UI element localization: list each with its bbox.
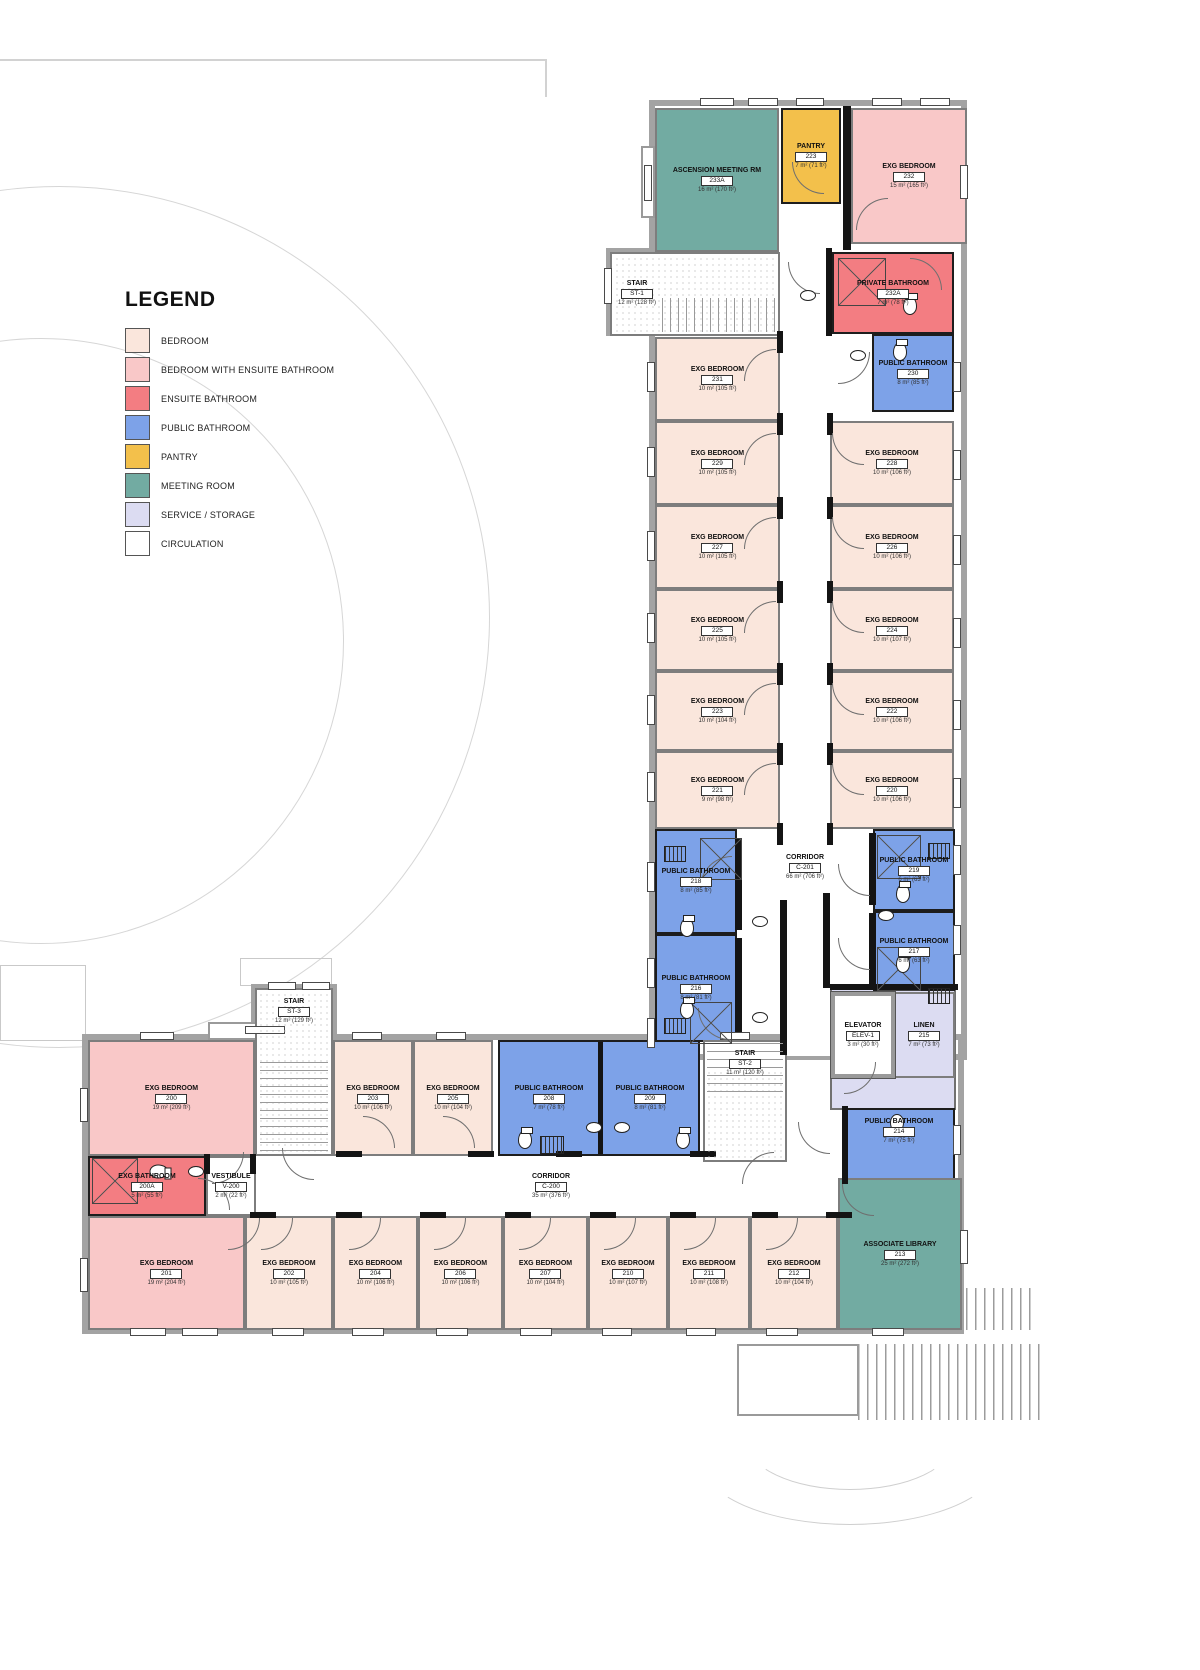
legend-title: LEGEND (125, 288, 385, 312)
site-boundary-line (0, 59, 546, 61)
legend-item-label: SERVICE / STORAGE (161, 510, 255, 520)
wall-bar (250, 1154, 256, 1174)
wall-bar (735, 938, 742, 1038)
window (436, 1328, 468, 1336)
room-name: STAIR (627, 280, 647, 288)
room-number: 232A (877, 289, 909, 299)
room-label: EXG BEDROOM21110 m² (108 ft²) (682, 1260, 735, 1287)
stair3-treads (260, 1062, 328, 1152)
window (647, 531, 655, 561)
room-area: 10 m² (106 ft²) (873, 718, 911, 725)
window (272, 1328, 304, 1336)
room-number: ST-2 (729, 1059, 761, 1069)
room-label: EXG BEDROOM22310 m² (104 ft²) (691, 698, 744, 725)
wall-bar (826, 1212, 852, 1218)
room-area: 7 m² (78 ft²) (877, 300, 908, 307)
window (644, 165, 652, 201)
room-name: PUBLIC BATHROOM (662, 868, 731, 876)
window (182, 1328, 218, 1336)
room-bedroom-201: EXG BEDROOM20119 m² (204 ft²) (88, 1216, 245, 1330)
room-label: EXG BEDROOM22910 m² (105 ft²) (691, 450, 744, 477)
wall-bar (869, 833, 876, 905)
room-area: 11 m² (120 ft²) (726, 1070, 764, 1077)
window (647, 362, 655, 392)
window (520, 1328, 552, 1336)
wall-bar (777, 413, 783, 435)
window (352, 1328, 384, 1336)
room-number: 209 (634, 1094, 666, 1104)
room-label: PUBLIC BATHROOM2308 m² (85 ft²) (879, 360, 948, 387)
wall-bar (204, 1154, 210, 1174)
room-label: EXG BEDROOM20610 m² (106 ft²) (434, 1260, 487, 1287)
room-number: 218 (680, 877, 712, 887)
window (953, 362, 961, 392)
room-name: EXG BEDROOM (145, 1085, 198, 1093)
room-number: 227 (701, 543, 733, 553)
window (953, 778, 961, 808)
room-label: ELEVATORELEV-13 m² (30 ft²) (845, 1022, 882, 1049)
room-name: EXG BEDROOM (691, 366, 744, 374)
room-name: LINEN (914, 1022, 935, 1030)
room-label: STAIRST-312 m² (129 ft²) (275, 998, 313, 1025)
room-area: 10 m² (107 ft²) (873, 637, 911, 644)
room-name: ASSOCIATE LIBRARY (863, 1241, 936, 1249)
window (953, 1125, 961, 1155)
sink-icon (752, 1012, 768, 1023)
room-area: 9 m² (98 ft²) (702, 797, 733, 804)
window (796, 98, 824, 106)
room-area: 10 m² (104 ft²) (526, 1280, 564, 1287)
room-name: EXG BEDROOM (691, 534, 744, 542)
legend: LEGEND BEDROOMBEDROOM WITH ENSUITE BATHR… (125, 288, 385, 558)
site-curve (745, 1390, 955, 1490)
room-number: 204 (359, 1269, 391, 1279)
window (130, 1328, 166, 1336)
room-name: EXG BEDROOM (865, 617, 918, 625)
room-number: ELEV-1 (846, 1031, 880, 1041)
wall-bar (598, 1042, 603, 1154)
window (647, 772, 655, 802)
room-label: PUBLIC BATHROOM2196 m² (63 ft²) (880, 857, 949, 884)
window (686, 1328, 716, 1336)
sink-icon (878, 910, 894, 921)
room-label: STAIRST-211 m² (120 ft²) (726, 1050, 764, 1077)
room-name: EXG BEDROOM (140, 1260, 193, 1268)
legend-item-public-bath: PUBLIC BATHROOM (125, 413, 385, 442)
room-name: EXG BEDROOM (691, 777, 744, 785)
room-name: EXG BEDROOM (262, 1260, 315, 1268)
room-meeting-233a: ASCENSION MEETING RM233A16 m² (170 ft²) (655, 108, 779, 252)
room-number: 223 (701, 707, 733, 717)
room-name: EXG BEDROOM (882, 163, 935, 171)
window (302, 982, 330, 990)
legend-item-circulation: CIRCULATION (125, 529, 385, 558)
room-label: EXG BEDROOM20119 m² (204 ft²) (140, 1260, 193, 1287)
room-number: 228 (876, 459, 908, 469)
room-label: PUBLIC BATHROOM2176 m² (63 ft²) (880, 938, 949, 965)
room-name: CORRIDOR (786, 854, 824, 862)
room-number: 200A (131, 1182, 163, 1192)
room-public-bath-230: PUBLIC BATHROOM2308 m² (85 ft²) (872, 334, 954, 412)
room-label: EXG BEDROOM20410 m² (106 ft²) (349, 1260, 402, 1287)
room-name: EXG BEDROOM (691, 450, 744, 458)
toilet-icon (518, 1130, 532, 1149)
room-name: EXG BEDROOM (519, 1260, 572, 1268)
room-label: EXG BEDROOM23110 m² (105 ft²) (691, 366, 744, 393)
room-name: PRIVATE BATHROOM (857, 280, 929, 288)
room-area: 8 m² (81 ft²) (634, 1105, 665, 1112)
wall-bar (826, 248, 832, 336)
room-label: PANTRY2237 m² (71 ft²) (795, 143, 827, 170)
room-name: ELEVATOR (845, 1022, 882, 1030)
room-area: 10 m² (104 ft²) (775, 1280, 813, 1287)
room-name: PUBLIC BATHROOM (515, 1085, 584, 1093)
room-area: 10 m² (105 ft²) (698, 554, 736, 561)
room-area: 7 m² (73 ft²) (908, 1042, 939, 1049)
room-area: 7 m² (75 ft²) (883, 1138, 914, 1145)
sink-icon (188, 1166, 204, 1177)
room-linen-215: LINEN2157 m² (73 ft²) (893, 992, 955, 1078)
room-number: 200 (155, 1094, 187, 1104)
room-area: 15 m² (165 ft²) (890, 183, 928, 190)
room-area: 8 m² (85 ft²) (680, 888, 711, 895)
room-name: PUBLIC BATHROOM (880, 857, 949, 865)
legend-item-label: BEDROOM WITH ENSUITE BATHROOM (161, 365, 334, 375)
room-name: EXG BEDROOM (767, 1260, 820, 1268)
room-area: 19 m² (204 ft²) (147, 1280, 185, 1287)
room-area: 35 m² (376 ft²) (532, 1193, 570, 1200)
room-label: EXG BEDROOM22810 m² (106 ft²) (865, 450, 918, 477)
wall-bar (823, 893, 830, 988)
room-name: PANTRY (797, 143, 825, 151)
room-label: EXG BEDROOM2219 m² (98 ft²) (691, 777, 744, 804)
room-label: EXG BEDROOM22210 m² (106 ft²) (865, 698, 918, 725)
room-name: EXG BEDROOM (434, 1260, 487, 1268)
room-number: 222 (876, 707, 908, 717)
room-number: 214 (883, 1127, 915, 1137)
room-label: EXG BEDROOM22610 m² (106 ft²) (865, 534, 918, 561)
room-label: PUBLIC BATHROOM2168 m² (81 ft²) (662, 975, 731, 1002)
wall-bar (843, 106, 851, 250)
window (352, 1032, 382, 1040)
legend-item-bedroom-ensuite: BEDROOM WITH ENSUITE BATHROOM (125, 355, 385, 384)
room-name: EXG BEDROOM (865, 777, 918, 785)
room-label: ASCENSION MEETING RM233A16 m² (170 ft²) (673, 167, 761, 194)
room-area: 10 m² (106 ft²) (873, 470, 911, 477)
window (960, 1230, 968, 1264)
room-name: PUBLIC BATHROOM (616, 1085, 685, 1093)
room-label: VESTIBULEV-2002 m² (22 ft²) (211, 1173, 250, 1200)
room-number: 233A (701, 176, 733, 186)
wall-bar (777, 497, 783, 519)
room-label: PUBLIC BATHROOM2188 m² (85 ft²) (662, 868, 731, 895)
window (602, 1328, 632, 1336)
window (268, 982, 296, 990)
toilet-icon (676, 1130, 690, 1149)
room-number: 201 (150, 1269, 182, 1279)
room-area: 10 m² (104 ft²) (698, 718, 736, 725)
room-area: 10 m² (106 ft²) (356, 1280, 394, 1287)
vent-grille-icon (664, 846, 686, 862)
wall-bar (842, 1106, 848, 1184)
window (80, 1258, 88, 1292)
room-area: 10 m² (105 ft²) (698, 637, 736, 644)
room-number: 211 (693, 1269, 725, 1279)
room-name: PUBLIC BATHROOM (880, 938, 949, 946)
room-number: C-201 (789, 863, 821, 873)
room-number: 224 (876, 626, 908, 636)
legend-items: BEDROOMBEDROOM WITH ENSUITE BATHROOMENSU… (125, 326, 385, 558)
window (604, 268, 612, 304)
room-name: STAIR (735, 1050, 755, 1058)
room-area: 10 m² (105 ft²) (698, 386, 736, 393)
toilet-icon (893, 342, 907, 361)
room-name: EXG BEDROOM (691, 698, 744, 706)
sink-icon (614, 1122, 630, 1133)
room-number: ST-1 (621, 289, 653, 299)
wall-bar (777, 331, 783, 353)
wall-bar (827, 823, 833, 845)
window (920, 98, 950, 106)
wall-bar (827, 743, 833, 765)
room-label: PUBLIC BATHROOM2098 m² (81 ft²) (616, 1085, 685, 1112)
room-label: EXG BEDROOM20710 m² (104 ft²) (519, 1260, 572, 1287)
toilet-icon (896, 884, 910, 903)
room-number: 205 (437, 1094, 469, 1104)
room-area: 7 m² (71 ft²) (795, 163, 826, 170)
room-area: 10 m² (104 ft²) (434, 1105, 472, 1112)
room-number: 206 (444, 1269, 476, 1279)
sink-icon (586, 1122, 602, 1133)
room-label: EXG BEDROOM20019 m² (209 ft²) (145, 1085, 198, 1112)
room-number: V-200 (215, 1182, 247, 1192)
window (647, 1018, 655, 1048)
window (953, 925, 961, 955)
wall-bar (869, 913, 876, 985)
room-number: 216 (680, 984, 712, 994)
room-area: 10 m² (108 ft²) (690, 1280, 728, 1287)
toilet-icon (680, 918, 694, 937)
room-number: C-200 (535, 1182, 567, 1192)
room-name: EXG BEDROOM (691, 617, 744, 625)
room-label: EXG BEDROOM22510 m² (105 ft²) (691, 617, 744, 644)
site-boundary-line (545, 59, 547, 97)
legend-swatch-bedroom (125, 328, 150, 353)
room-number: 215 (908, 1031, 940, 1041)
room-number: 225 (701, 626, 733, 636)
window (647, 447, 655, 477)
room-name: EXG BEDROOM (865, 698, 918, 706)
room-label: PUBLIC BATHROOM2087 m² (78 ft²) (515, 1085, 584, 1112)
vent-grille-icon (664, 1018, 686, 1034)
room-number: 208 (533, 1094, 565, 1104)
room-area: 8 m² (81 ft²) (680, 995, 711, 1002)
legend-item-meeting: MEETING ROOM (125, 471, 385, 500)
legend-item-label: PUBLIC BATHROOM (161, 423, 250, 433)
room-name: STAIR (284, 998, 304, 1006)
room-name: PUBLIC BATHROOM (865, 1118, 934, 1126)
wall-bar (777, 581, 783, 603)
room-area: 66 m² (706 ft²) (786, 874, 824, 881)
room-label: PUBLIC BATHROOM2147 m² (75 ft²) (865, 1118, 934, 1145)
window (953, 845, 961, 875)
room-label: EXG BEDROOM20210 m² (105 ft²) (262, 1260, 315, 1287)
room-name: PUBLIC BATHROOM (879, 360, 948, 368)
stair1-treads (662, 298, 778, 332)
room-area: 3 m² (30 ft²) (847, 1042, 878, 1049)
wall-bar (827, 413, 833, 435)
room-label: EXG BEDROOM21210 m² (104 ft²) (767, 1260, 820, 1287)
wall-bar (827, 663, 833, 685)
room-area: 2 m² (22 ft²) (215, 1193, 246, 1200)
room-number: 220 (876, 786, 908, 796)
sink-icon (752, 916, 768, 927)
room-label: LINEN2157 m² (73 ft²) (908, 1022, 940, 1049)
room-label: EXG BEDROOM22010 m² (106 ft²) (865, 777, 918, 804)
room-number: 210 (612, 1269, 644, 1279)
room-number: 219 (898, 866, 930, 876)
window (700, 98, 734, 106)
room-area: 19 m² (209 ft²) (152, 1105, 190, 1112)
legend-swatch-service (125, 502, 150, 527)
room-number: 221 (701, 786, 733, 796)
window (872, 1328, 904, 1336)
window (647, 862, 655, 892)
room-name: EXG BEDROOM (865, 534, 918, 542)
room-name: EXG BATHROOM (118, 1173, 175, 1181)
window (953, 535, 961, 565)
room-area: 10 m² (105 ft²) (698, 470, 736, 477)
room-label: EXG BEDROOM22710 m² (105 ft²) (691, 534, 744, 561)
wall-bar (777, 663, 783, 685)
room-name: EXG BEDROOM (349, 1260, 402, 1268)
room-number: 226 (876, 543, 908, 553)
room-name: VESTIBULE (211, 1173, 250, 1181)
room-label: EXG BEDROOM20310 m² (106 ft²) (346, 1085, 399, 1112)
room-label: EXG BATHROOM200A5 m² (55 ft²) (118, 1173, 175, 1200)
wall-bar (827, 581, 833, 603)
legend-item-ensuite-bath: ENSUITE BATHROOM (125, 384, 385, 413)
legend-swatch-circulation (125, 531, 150, 556)
room-name: EXG BEDROOM (426, 1085, 479, 1093)
room-label: CORRIDORC-20166 m² (706 ft²) (786, 854, 824, 881)
room-area: 12 m² (128 ft²) (618, 300, 656, 307)
room-label: EXG BEDROOM22410 m² (107 ft²) (865, 617, 918, 644)
legend-item-label: BEDROOM (161, 336, 209, 346)
legend-swatch-pantry (125, 444, 150, 469)
room-area: 10 m² (105 ft²) (270, 1280, 308, 1287)
window (436, 1032, 466, 1040)
room-name: ASCENSION MEETING RM (673, 167, 761, 175)
legend-swatch-bedroom-ensuite (125, 357, 150, 382)
window (953, 618, 961, 648)
window (960, 165, 968, 199)
room-label: ASSOCIATE LIBRARY21325 m² (272 ft²) (863, 1241, 936, 1268)
room-number: ST-3 (278, 1007, 310, 1017)
window (647, 958, 655, 988)
site-ramp-hatch (966, 1288, 1038, 1330)
room-area: 12 m² (129 ft²) (275, 1018, 313, 1025)
legend-item-label: PANTRY (161, 452, 198, 462)
room-name: EXG BEDROOM (346, 1085, 399, 1093)
legend-item-service: SERVICE / STORAGE (125, 500, 385, 529)
window (647, 695, 655, 725)
room-number: 213 (884, 1250, 916, 1260)
room-area: 5 m² (55 ft²) (131, 1193, 162, 1200)
vent-grille-icon (928, 988, 950, 1004)
wall-bar (780, 900, 787, 1055)
window (80, 1088, 88, 1122)
room-area: 10 m² (106 ft²) (354, 1105, 392, 1112)
legend-item-pantry: PANTRY (125, 442, 385, 471)
room-name: EXG BEDROOM (865, 450, 918, 458)
room-public-bath-214: PUBLIC BATHROOM2147 m² (75 ft²) (843, 1108, 955, 1184)
toilet-icon (680, 1000, 694, 1019)
room-area: 10 m² (106 ft²) (441, 1280, 479, 1287)
room-name: PUBLIC BATHROOM (662, 975, 731, 983)
room-name: CORRIDOR (532, 1173, 570, 1181)
room-area: 6 m² (63 ft²) (898, 958, 929, 965)
room-name: EXG BEDROOM (682, 1260, 735, 1268)
legend-item-label: MEETING ROOM (161, 481, 235, 491)
window (140, 1032, 174, 1040)
room-number: 231 (701, 375, 733, 385)
room-label: EXG BEDROOM21010 m² (107 ft²) (601, 1260, 654, 1287)
room-label: CORRIDORC-20035 m² (376 ft²) (532, 1173, 570, 1200)
room-area: 7 m² (78 ft²) (533, 1105, 564, 1112)
room-area: 8 m² (85 ft²) (897, 380, 928, 387)
legend-item-label: ENSUITE BATHROOM (161, 394, 257, 404)
room-bedroom-200: EXG BEDROOM20019 m² (209 ft²) (88, 1040, 255, 1156)
vent-grille-icon (540, 1136, 564, 1154)
room-number: 207 (529, 1269, 561, 1279)
legend-swatch-ensuite-bath (125, 386, 150, 411)
room-number: 230 (897, 369, 929, 379)
window (953, 450, 961, 480)
room-name: EXG BEDROOM (601, 1260, 654, 1268)
room-number: 202 (273, 1269, 305, 1279)
room-number: 223 (795, 152, 827, 162)
wall-bar (777, 743, 783, 765)
room-area: 25 m² (272 ft²) (881, 1261, 919, 1268)
shower-icon (690, 1002, 732, 1044)
wall-bar (468, 1151, 494, 1157)
room-number: 212 (778, 1269, 810, 1279)
sink-icon (800, 290, 816, 301)
window (766, 1328, 798, 1336)
room-number: 229 (701, 459, 733, 469)
room-area: 6 m² (63 ft²) (898, 877, 929, 884)
sink-icon (850, 350, 866, 361)
wall-bar (336, 1151, 362, 1157)
window (647, 613, 655, 643)
wall-bar (827, 497, 833, 519)
legend-swatch-public-bath (125, 415, 150, 440)
window (953, 700, 961, 730)
site-structure (0, 965, 86, 1041)
room-label: STAIRST-112 m² (128 ft²) (618, 280, 656, 307)
window (872, 98, 902, 106)
room-label: EXG BEDROOM23215 m² (165 ft²) (882, 163, 935, 190)
legend-item-bedroom: BEDROOM (125, 326, 385, 355)
legend-item-label: CIRCULATION (161, 539, 224, 549)
room-number: 232 (893, 172, 925, 182)
room-area: 10 m² (106 ft²) (873, 554, 911, 561)
room-area: 16 m² (170 ft²) (698, 187, 736, 194)
legend-swatch-meeting (125, 473, 150, 498)
window (748, 98, 778, 106)
room-label: EXG BEDROOM20510 m² (104 ft²) (426, 1085, 479, 1112)
